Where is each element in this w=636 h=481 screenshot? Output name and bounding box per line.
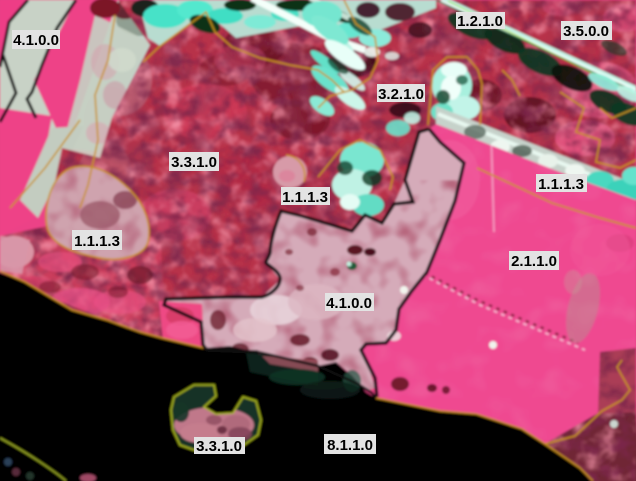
svg-text:1.1.1.3: 1.1.1.3 [282, 189, 328, 206]
svg-text:4.1.0.0: 4.1.0.0 [326, 295, 372, 312]
svg-text:1.1.1.3: 1.1.1.3 [74, 233, 120, 250]
svg-text:3.5.0.0: 3.5.0.0 [563, 23, 609, 40]
svg-text:3.2.1.0: 3.2.1.0 [378, 86, 424, 103]
svg-text:8.1.1.0: 8.1.1.0 [327, 437, 373, 454]
svg-text:1.2.1.0: 1.2.1.0 [457, 13, 503, 30]
svg-text:3.3.1.0: 3.3.1.0 [171, 154, 217, 171]
svg-text:3.3.1.0: 3.3.1.0 [196, 438, 242, 455]
svg-text:1.1.1.3: 1.1.1.3 [538, 176, 584, 193]
svg-text:4.1.0.0: 4.1.0.0 [13, 32, 59, 49]
svg-text:2.1.1.0: 2.1.1.0 [511, 253, 557, 270]
